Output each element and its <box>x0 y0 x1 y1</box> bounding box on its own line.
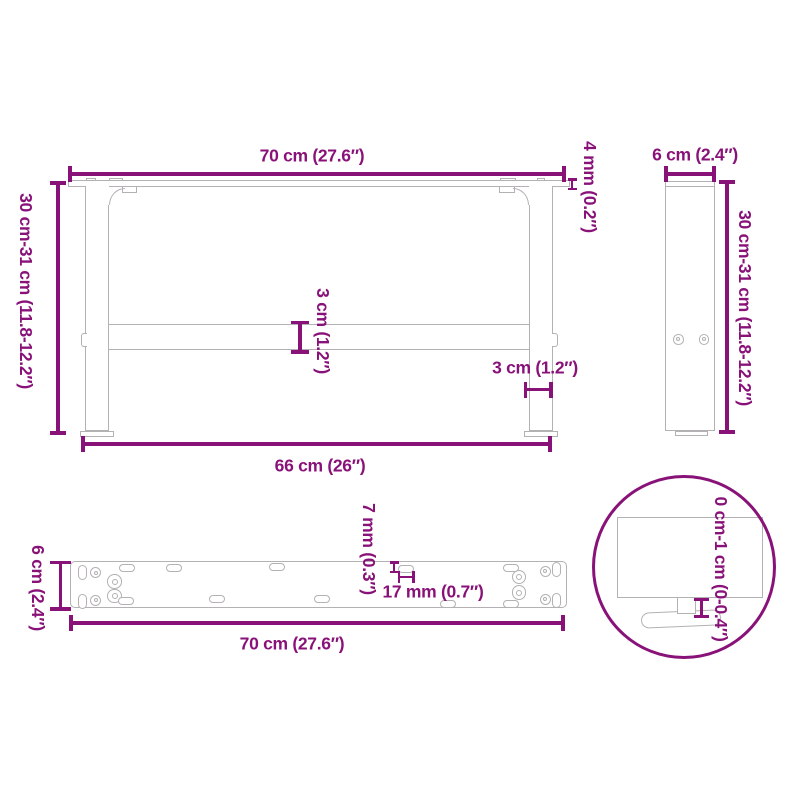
detail-circle <box>592 475 776 659</box>
washer-center <box>516 590 522 596</box>
slot-vertical <box>552 562 561 577</box>
dim-tick <box>69 615 73 631</box>
dim-tick <box>548 436 552 452</box>
dim-line <box>70 172 566 176</box>
slot-horizontal <box>209 595 225 603</box>
dim-tick <box>664 166 668 182</box>
washer-center <box>112 593 118 599</box>
dim-line <box>298 321 302 354</box>
side-leg-body <box>665 186 715 431</box>
plate-mark <box>537 178 545 182</box>
dim-tick <box>68 166 72 182</box>
dim-line <box>393 561 396 573</box>
leg-right-fillet <box>513 188 529 205</box>
foot-right <box>524 431 558 438</box>
dim-tick <box>50 431 66 435</box>
dim-label-plate-width: 70 cm (27.6″) <box>240 635 345 653</box>
dim-label-side-height: 30 cm-31 cm (11.8-12.2″) <box>735 210 753 406</box>
dim-line <box>398 576 415 579</box>
leg-left-fillet <box>109 188 125 205</box>
dim-tick <box>81 436 85 452</box>
dim-line <box>725 182 729 434</box>
foot-left <box>80 431 114 438</box>
dim-tick <box>561 615 565 631</box>
slot-vertical <box>552 593 561 608</box>
dim-label-bottom-width: 66 cm (26″) <box>275 457 366 475</box>
crossbar-bolt-left <box>81 333 87 347</box>
plate-mark <box>109 178 123 182</box>
dim-tick <box>50 181 66 185</box>
slot-horizontal <box>118 597 134 605</box>
slot-horizontal <box>314 595 330 603</box>
dim-line <box>56 183 60 435</box>
slot-horizontal <box>503 564 519 572</box>
slot-vertical <box>78 594 87 609</box>
leg-right-inner-edge <box>529 205 530 431</box>
dim-label-plate-thickness: 4 mm (0.2″) <box>580 141 598 233</box>
screw-center <box>94 598 98 602</box>
dim-label-side-depth: 6 cm (2.4″) <box>652 146 738 164</box>
screw-center <box>543 597 547 601</box>
technical-drawing-table-legs: 70 cm (27.6″) 30 cm-31 cm (11.8-12.2″) 4… <box>0 0 800 800</box>
dim-line <box>700 598 703 618</box>
dim-tick <box>562 166 566 182</box>
dim-label-crossbar-thickness: 3 cm (1.2″) <box>313 288 331 374</box>
dim-tick <box>719 180 735 184</box>
dim-tick <box>719 430 735 434</box>
dim-line <box>59 561 63 611</box>
slot-horizontal <box>503 600 519 608</box>
dim-tick <box>712 166 716 182</box>
screw-center <box>94 571 98 575</box>
slot-horizontal <box>269 563 285 571</box>
screw-center <box>543 569 547 573</box>
slot-horizontal <box>119 564 135 572</box>
side-foot <box>675 431 708 436</box>
dim-label-left-height: 30 cm-31 cm (11.8-12.2″) <box>16 193 34 389</box>
plate-mark <box>86 178 96 182</box>
dim-line <box>666 172 716 176</box>
dim-line <box>83 442 552 446</box>
leg-left <box>85 186 109 431</box>
dim-line <box>571 178 574 190</box>
dim-line <box>71 621 563 625</box>
dim-label-leg-thickness: 3 cm (1.2″) <box>492 359 578 377</box>
washer-center <box>516 574 522 580</box>
leg-left-inner-edge <box>108 205 109 431</box>
dim-label-slot-width: 7 mm (0.3″) <box>359 503 377 595</box>
top-plate <box>68 180 570 187</box>
dim-label-plate-depth: 6 cm (2.4″) <box>28 545 46 631</box>
crossbar-bolt-right <box>552 333 558 347</box>
dim-line <box>524 388 553 392</box>
slot-horizontal <box>166 564 182 572</box>
dim-label-foot-adjustment: 0 cm-1 cm (0-0.4″) <box>711 497 729 642</box>
slot-vertical <box>78 565 87 580</box>
plate-mark <box>500 178 516 182</box>
dim-label-slot-length: 17 mm (0.7″) <box>382 583 483 601</box>
dim-label-top-width: 70 cm (27.6″) <box>260 147 365 165</box>
washer-center <box>112 579 118 585</box>
